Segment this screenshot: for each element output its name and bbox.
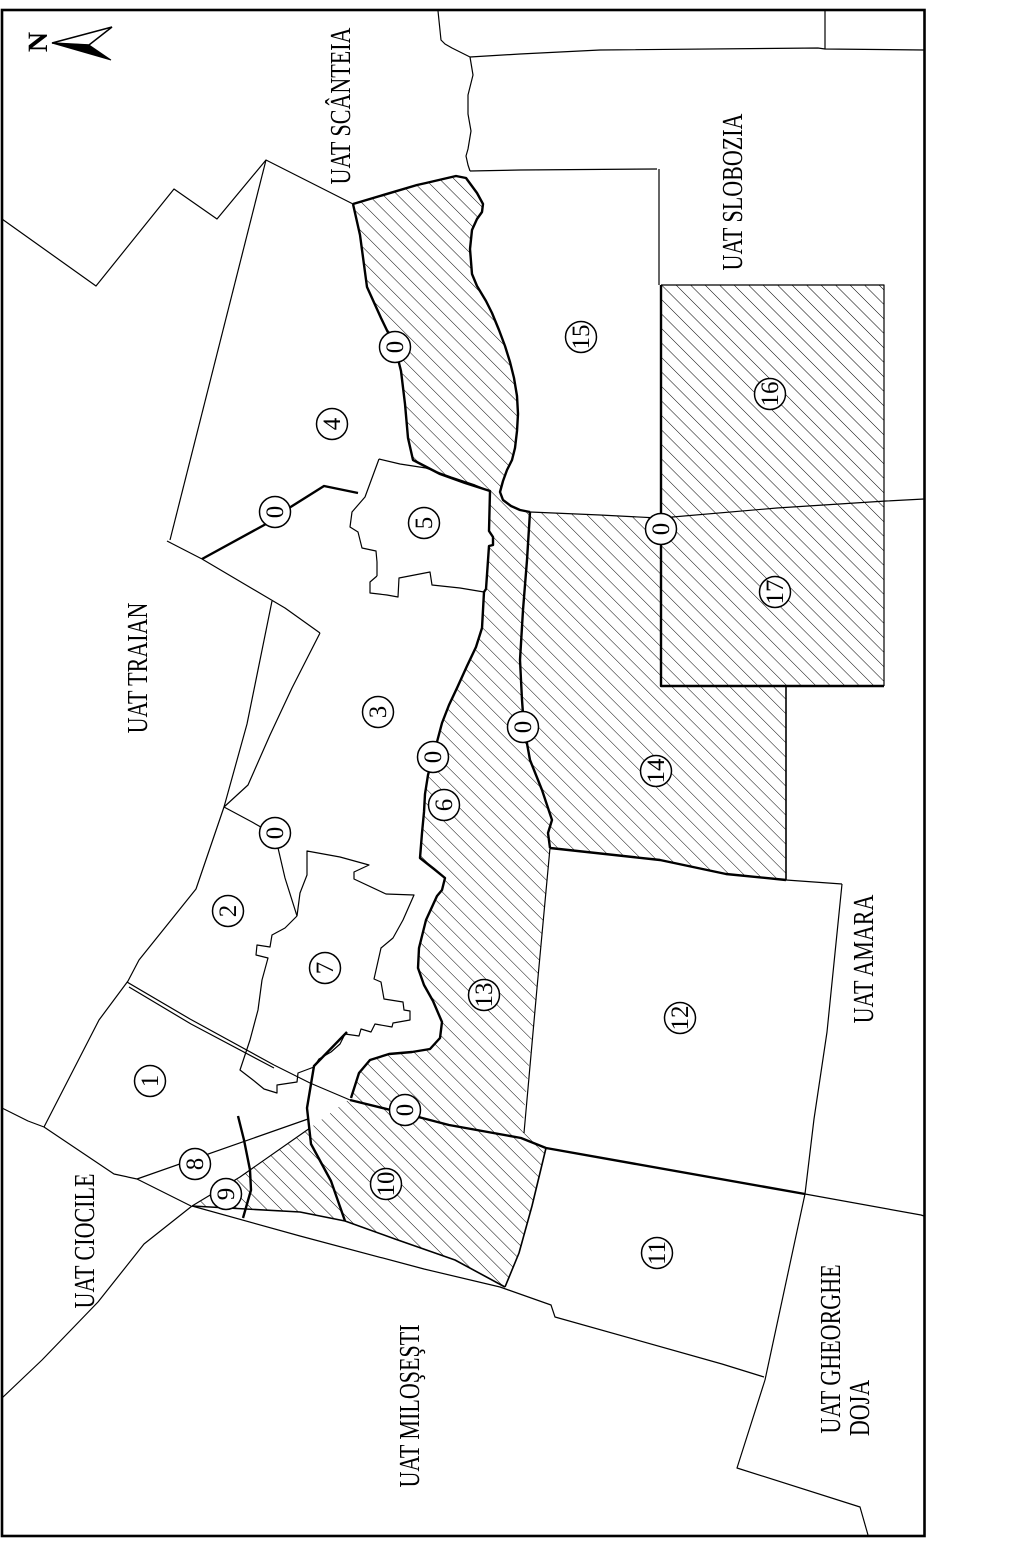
svg-text:9: 9 <box>213 1188 240 1201</box>
svg-text:13: 13 <box>471 983 498 1008</box>
svg-text:7: 7 <box>312 962 339 975</box>
svg-text:4: 4 <box>319 417 346 430</box>
svg-text:UAT TRAIAN: UAT TRAIAN <box>122 603 154 734</box>
svg-text:17: 17 <box>762 580 789 605</box>
svg-text:N: N <box>23 32 54 52</box>
svg-text:UAT GHEORGHE: UAT GHEORGHE <box>815 1264 847 1433</box>
svg-text:11: 11 <box>644 1241 671 1265</box>
svg-text:0: 0 <box>262 827 289 840</box>
svg-text:UAT CIOCILE: UAT CIOCILE <box>69 1174 101 1309</box>
svg-text:16: 16 <box>757 382 784 407</box>
svg-text:12: 12 <box>667 1006 694 1031</box>
svg-text:UAT SLOBOZIA: UAT SLOBOZIA <box>717 113 749 270</box>
svg-text:14: 14 <box>643 758 670 784</box>
svg-text:1: 1 <box>137 1075 164 1088</box>
svg-text:UAT AMARA: UAT AMARA <box>848 895 880 1024</box>
svg-text:0: 0 <box>420 751 447 764</box>
svg-text:0: 0 <box>648 523 675 536</box>
svg-text:0: 0 <box>392 1104 419 1117</box>
svg-text:0: 0 <box>510 721 537 734</box>
svg-text:UAT MILOŞEŞTI: UAT MILOŞEŞTI <box>394 1324 426 1487</box>
svg-text:2: 2 <box>215 905 242 918</box>
svg-text:DOJA: DOJA <box>844 1380 876 1436</box>
svg-text:8: 8 <box>182 1158 209 1171</box>
svg-text:0: 0 <box>382 341 409 354</box>
svg-text:15: 15 <box>568 325 595 350</box>
svg-text:10: 10 <box>373 1172 400 1197</box>
svg-text:5: 5 <box>411 517 438 530</box>
svg-text:0: 0 <box>262 506 289 519</box>
svg-text:UAT SCÂNTEIA: UAT SCÂNTEIA <box>325 27 357 184</box>
svg-text:6: 6 <box>431 799 458 812</box>
svg-text:3: 3 <box>365 706 392 719</box>
